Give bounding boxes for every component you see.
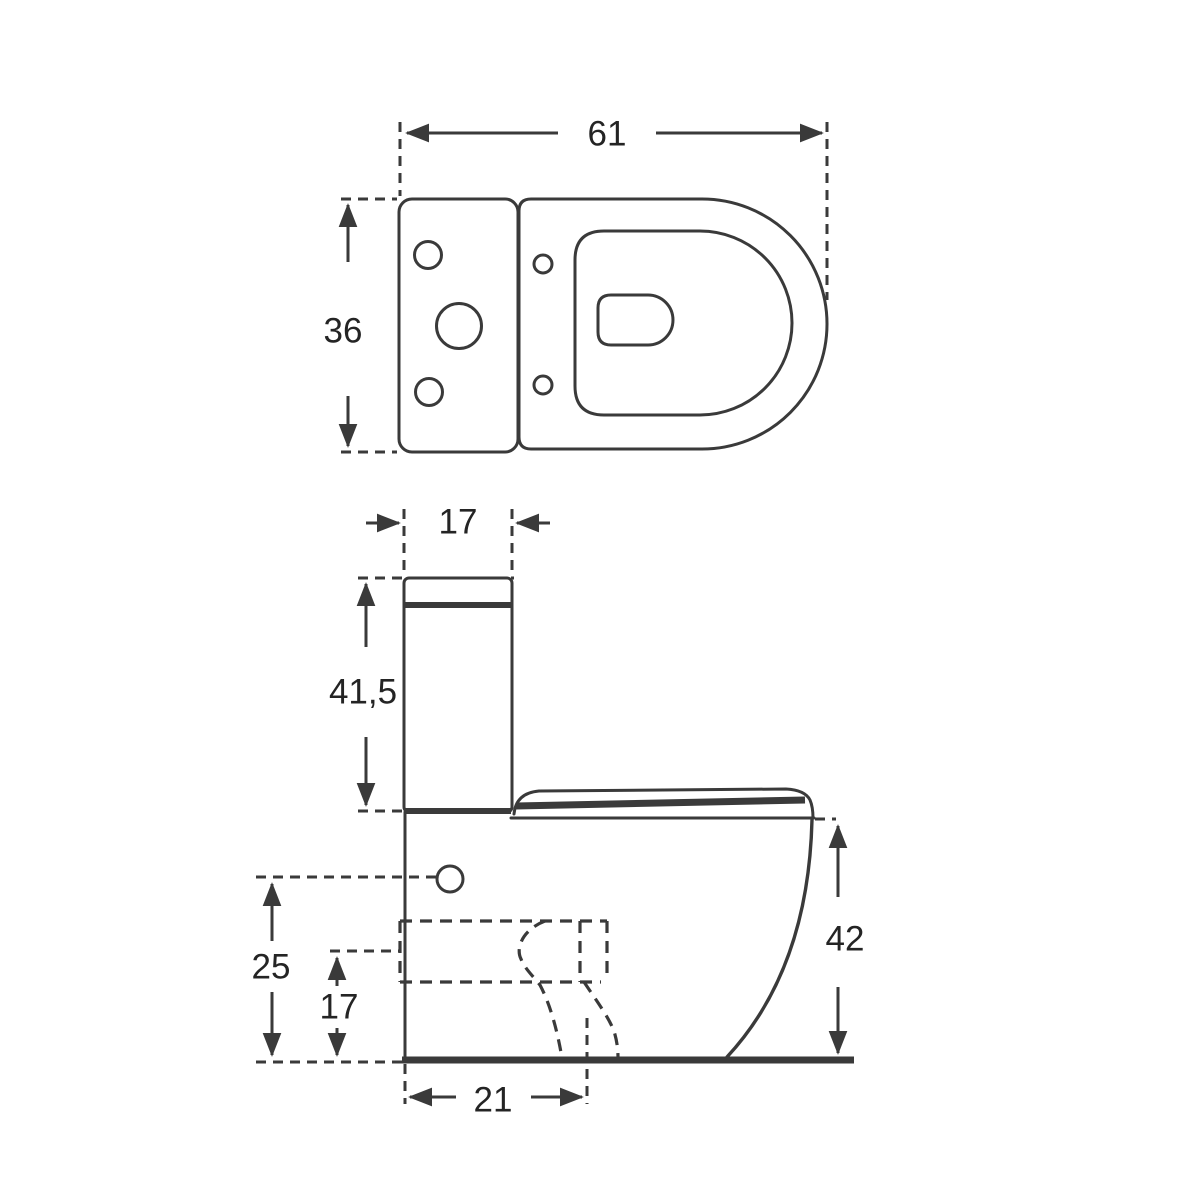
hinge-hole-bottom xyxy=(534,376,552,394)
top-view-seat xyxy=(519,199,827,449)
dim-flush-inlet-height: 25 xyxy=(252,877,437,1062)
top-view-cistern xyxy=(399,199,518,452)
dim-rim-height: 42 xyxy=(815,819,864,1053)
flush-water-outline xyxy=(598,295,673,345)
dim-cistern-depth: 17 xyxy=(366,503,550,577)
trap-pipe-left-curve xyxy=(519,921,562,1058)
drawing-canvas: 61 36 xyxy=(0,0,1200,1200)
dim-cistern-height: 41,5 xyxy=(329,578,514,811)
seat-ring-band xyxy=(516,800,805,806)
dim-label-cistern-height: 41,5 xyxy=(329,673,397,712)
dim-label-cistern-depth: 17 xyxy=(439,503,478,542)
dim-label-outlet-height: 17 xyxy=(320,988,359,1027)
side-view-seat xyxy=(511,789,814,818)
side-view-bowl xyxy=(402,812,854,1060)
dim-label-outlet-setout: 21 xyxy=(474,1081,513,1120)
hinge-hole-top xyxy=(534,255,552,273)
bowl-front-curve xyxy=(727,820,812,1057)
dim-label-overall-width: 61 xyxy=(588,115,627,154)
seat-inner-outline xyxy=(575,231,792,415)
side-view: 17 41,5 xyxy=(252,503,865,1120)
toilet-dimension-drawing: 61 36 xyxy=(0,0,1200,1200)
cistern-outline-side xyxy=(404,578,512,812)
dim-outlet-setout: 21 xyxy=(405,1018,587,1120)
cistern-hole-bottom xyxy=(416,379,443,406)
dim-label-flush-inlet-height: 25 xyxy=(252,948,291,987)
cistern-outline-top xyxy=(399,199,518,452)
trap-pipe-right-curve xyxy=(584,982,618,1058)
fill-valve-hole xyxy=(437,304,482,349)
dim-outlet-height: 17 xyxy=(320,951,399,1055)
dim-overall-depth: 36 xyxy=(324,199,397,452)
side-view-cistern xyxy=(404,578,512,812)
dim-label-rim-height: 42 xyxy=(826,920,865,959)
dim-overall-width: 61 xyxy=(400,115,827,301)
top-view: 61 36 xyxy=(324,115,827,453)
cistern-hole-top xyxy=(415,242,442,269)
dim-label-overall-depth: 36 xyxy=(324,312,363,351)
trap-outline xyxy=(400,921,618,1058)
flush-inlet-hole xyxy=(437,866,463,892)
